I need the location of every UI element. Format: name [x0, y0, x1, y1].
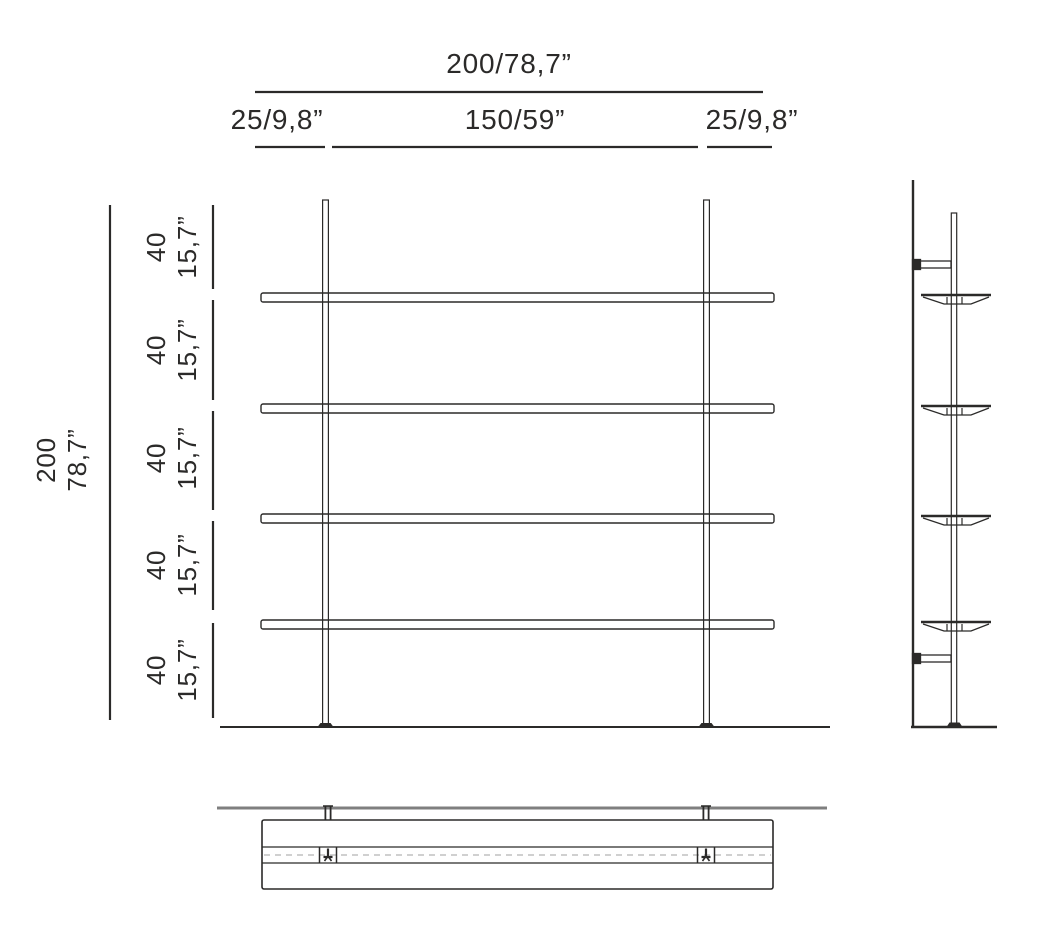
- wall-bracket-top: [913, 260, 952, 270]
- foot-left: [318, 723, 334, 727]
- post-foot-side: [947, 723, 963, 728]
- side-view: [911, 180, 997, 727]
- plan-view: [217, 806, 827, 890]
- segment-2-cm: 40: [141, 335, 172, 366]
- dimension-drawing: 200/78,7” 25/9,8” 150/59” 25/9,8” 200 78…: [0, 0, 1061, 942]
- segment-label-3: 40 15,7”: [146, 403, 198, 513]
- right-offset-label: 25/9,8”: [692, 104, 812, 136]
- post-left: [323, 200, 329, 727]
- posts-front: [323, 200, 710, 727]
- foot-right: [699, 723, 715, 727]
- segment-label-4: 40 15,7”: [146, 510, 198, 620]
- segment-3-inches: 15,7”: [172, 426, 203, 489]
- segment-1-cm: 40: [141, 232, 172, 263]
- segment-4-inches: 15,7”: [172, 533, 203, 596]
- total-height-inches: 78,7”: [62, 428, 93, 491]
- segment-1-inches: 15,7”: [172, 215, 203, 278]
- segment-2-inches: 15,7”: [172, 318, 203, 381]
- segment-4-cm: 40: [141, 550, 172, 581]
- segment-3-cm: 40: [141, 443, 172, 474]
- shelf-3: [261, 514, 774, 523]
- front-view: [220, 200, 830, 727]
- post-right: [704, 200, 710, 727]
- wall-bracket-bottom: [913, 654, 952, 664]
- shelf-4: [261, 620, 774, 629]
- shelf-section-3: [921, 516, 991, 525]
- segment-5-inches: 15,7”: [172, 638, 203, 701]
- shelf-section-1: [921, 295, 991, 304]
- shelf-section-4: [921, 622, 991, 631]
- total-width-label: 200/78,7”: [255, 48, 763, 80]
- segment-5-cm: 40: [141, 655, 172, 686]
- shelf-1: [261, 293, 774, 302]
- segment-label-1: 40 15,7”: [146, 192, 198, 302]
- total-height-label: 200 78,7”: [33, 385, 91, 535]
- total-height-cm: 200: [31, 437, 62, 483]
- shelf-section-2: [921, 406, 991, 415]
- post-side: [951, 213, 956, 727]
- shelves-front: [261, 293, 774, 629]
- segment-label-5: 40 15,7”: [146, 615, 198, 725]
- left-offset-label: 25/9,8”: [217, 104, 337, 136]
- center-span-label: 150/59”: [435, 104, 595, 136]
- segment-label-2: 40 15,7”: [146, 295, 198, 405]
- post-section-plan-right: [698, 847, 715, 863]
- shelf-2: [261, 404, 774, 413]
